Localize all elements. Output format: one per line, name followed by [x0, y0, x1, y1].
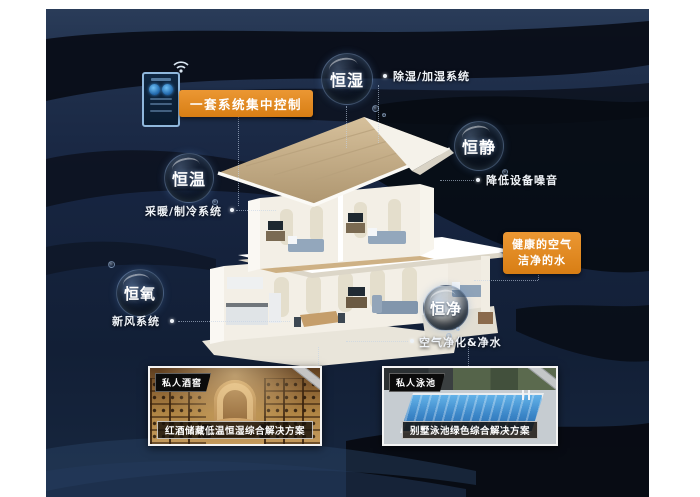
infographic-canvas: 一套系统集中控制 恒湿 除湿/加湿系统 恒静 降低设备噪音 恒温 采暖/制冷系统… — [46, 9, 649, 497]
wine-cellar-caption: 红酒储藏低温恒湿综合解决方案 — [157, 421, 313, 439]
mini-bubble — [108, 261, 115, 268]
pool-caption: 别墅泳池绿色综合解决方案 — [402, 421, 538, 439]
highlight-line1: 健康的空气 — [510, 237, 574, 253]
poster-stage: 一套系统集中控制 恒湿 除湿/加湿系统 恒静 降低设备噪音 恒温 采暖/制冷系统… — [0, 0, 700, 497]
bullet-dot — [170, 319, 174, 323]
mini-bubble — [456, 327, 460, 331]
highlight-line2: 洁净的水 — [510, 253, 574, 269]
bubble-constant-humidity: 恒湿 — [321, 53, 373, 105]
healthy-air-water-box: 健康的空气 洁净的水 — [503, 232, 581, 274]
panel-row — [150, 110, 172, 112]
bullet-dot — [230, 208, 234, 212]
central-control-label: 一套系统集中控制 — [179, 90, 313, 117]
panel-row — [150, 98, 172, 100]
connector-wine-card — [318, 347, 319, 366]
pool-card: 私人泳池 别墅泳池绿色综合解决方案 — [382, 366, 558, 446]
label-air-water-purification: 空气净化&净水 — [419, 334, 502, 350]
label-heating-cooling-system: 采暖/制冷系统 — [145, 203, 222, 219]
smart-control-panel-icon — [142, 72, 180, 127]
mini-bubble — [382, 113, 386, 117]
panel-row — [150, 103, 172, 105]
wine-cellar-card: 私人酒窖 红酒储藏低温恒湿综合解决方案 — [148, 366, 322, 446]
connector-noise — [440, 180, 474, 181]
connector-freshair — [178, 321, 290, 322]
panel-dial-left — [149, 84, 160, 95]
bubble-constant-oxygen: 恒氧 — [116, 269, 164, 317]
connector-waterbox-h — [474, 280, 538, 281]
wine-cellar-tag: 私人酒窖 — [155, 373, 211, 392]
mini-bubble — [372, 105, 379, 112]
bullet-dot — [383, 74, 387, 78]
pool-ladder — [522, 390, 530, 400]
panel-dials — [147, 84, 175, 95]
pool-tag: 私人泳池 — [389, 373, 445, 392]
connector-purify — [346, 341, 408, 342]
bullet-dot — [476, 178, 480, 182]
connector-heating — [236, 210, 276, 211]
label-noise-reduction: 降低设备噪音 — [486, 172, 558, 188]
label-fresh-air-system: 新风系统 — [112, 313, 160, 329]
bubble-constant-temperature: 恒温 — [164, 153, 214, 203]
bubble-constant-purity: 恒净 — [423, 285, 469, 331]
bullet-dot — [410, 339, 414, 343]
connector-dehumidify-to-house — [378, 85, 379, 143]
label-dehumidify-system: 除湿/加湿系统 — [393, 68, 470, 84]
connector-hengshi-to-roof — [346, 106, 347, 148]
wifi-icon — [172, 59, 190, 73]
panel-header-bar — [151, 78, 171, 81]
panel-dial-right — [162, 84, 173, 95]
connector-panel-to-house — [238, 110, 239, 206]
bubble-constant-quiet: 恒静 — [454, 121, 504, 171]
